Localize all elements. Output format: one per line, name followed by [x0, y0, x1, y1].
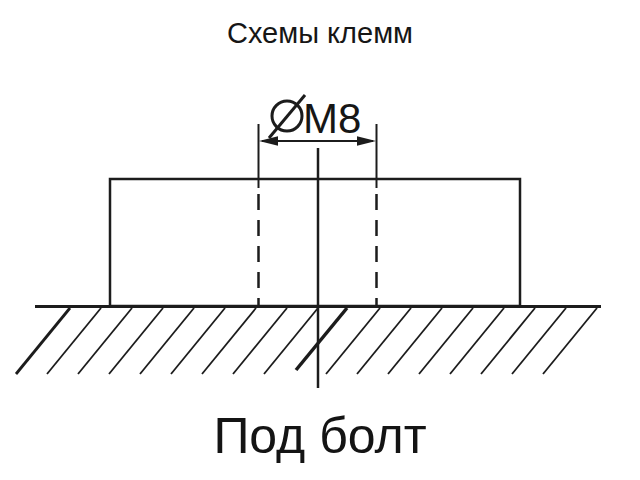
hatch-line [109, 308, 163, 374]
arrowhead-right-icon [357, 136, 376, 145]
dimension-label: M8 [303, 95, 361, 142]
hatch-line [326, 308, 380, 374]
hatch-line [388, 308, 442, 374]
hatch-line [16, 308, 70, 374]
hatch-line [481, 308, 535, 374]
hatch-line [419, 308, 473, 374]
hatch-line [264, 308, 318, 374]
hatch-line-bold [296, 308, 347, 370]
hatch-line [233, 308, 287, 374]
hatch-line [450, 308, 504, 374]
hatch-line [357, 308, 411, 374]
hatch-line [543, 308, 597, 374]
hatching [16, 308, 597, 374]
arrowhead-left-icon [259, 136, 278, 145]
terminal-scheme-diagram: Схемы клемм M8 Под болт [0, 0, 640, 480]
hatch-line [140, 308, 194, 374]
hatch-line [47, 308, 101, 374]
hatch-line [202, 308, 256, 374]
hatch-line [78, 308, 132, 374]
hatch-line [171, 308, 225, 374]
caption: Под болт [0, 411, 640, 461]
diameter-icon [269, 95, 305, 138]
hatch-line [512, 308, 566, 374]
terminal-body-outline [110, 179, 520, 306]
